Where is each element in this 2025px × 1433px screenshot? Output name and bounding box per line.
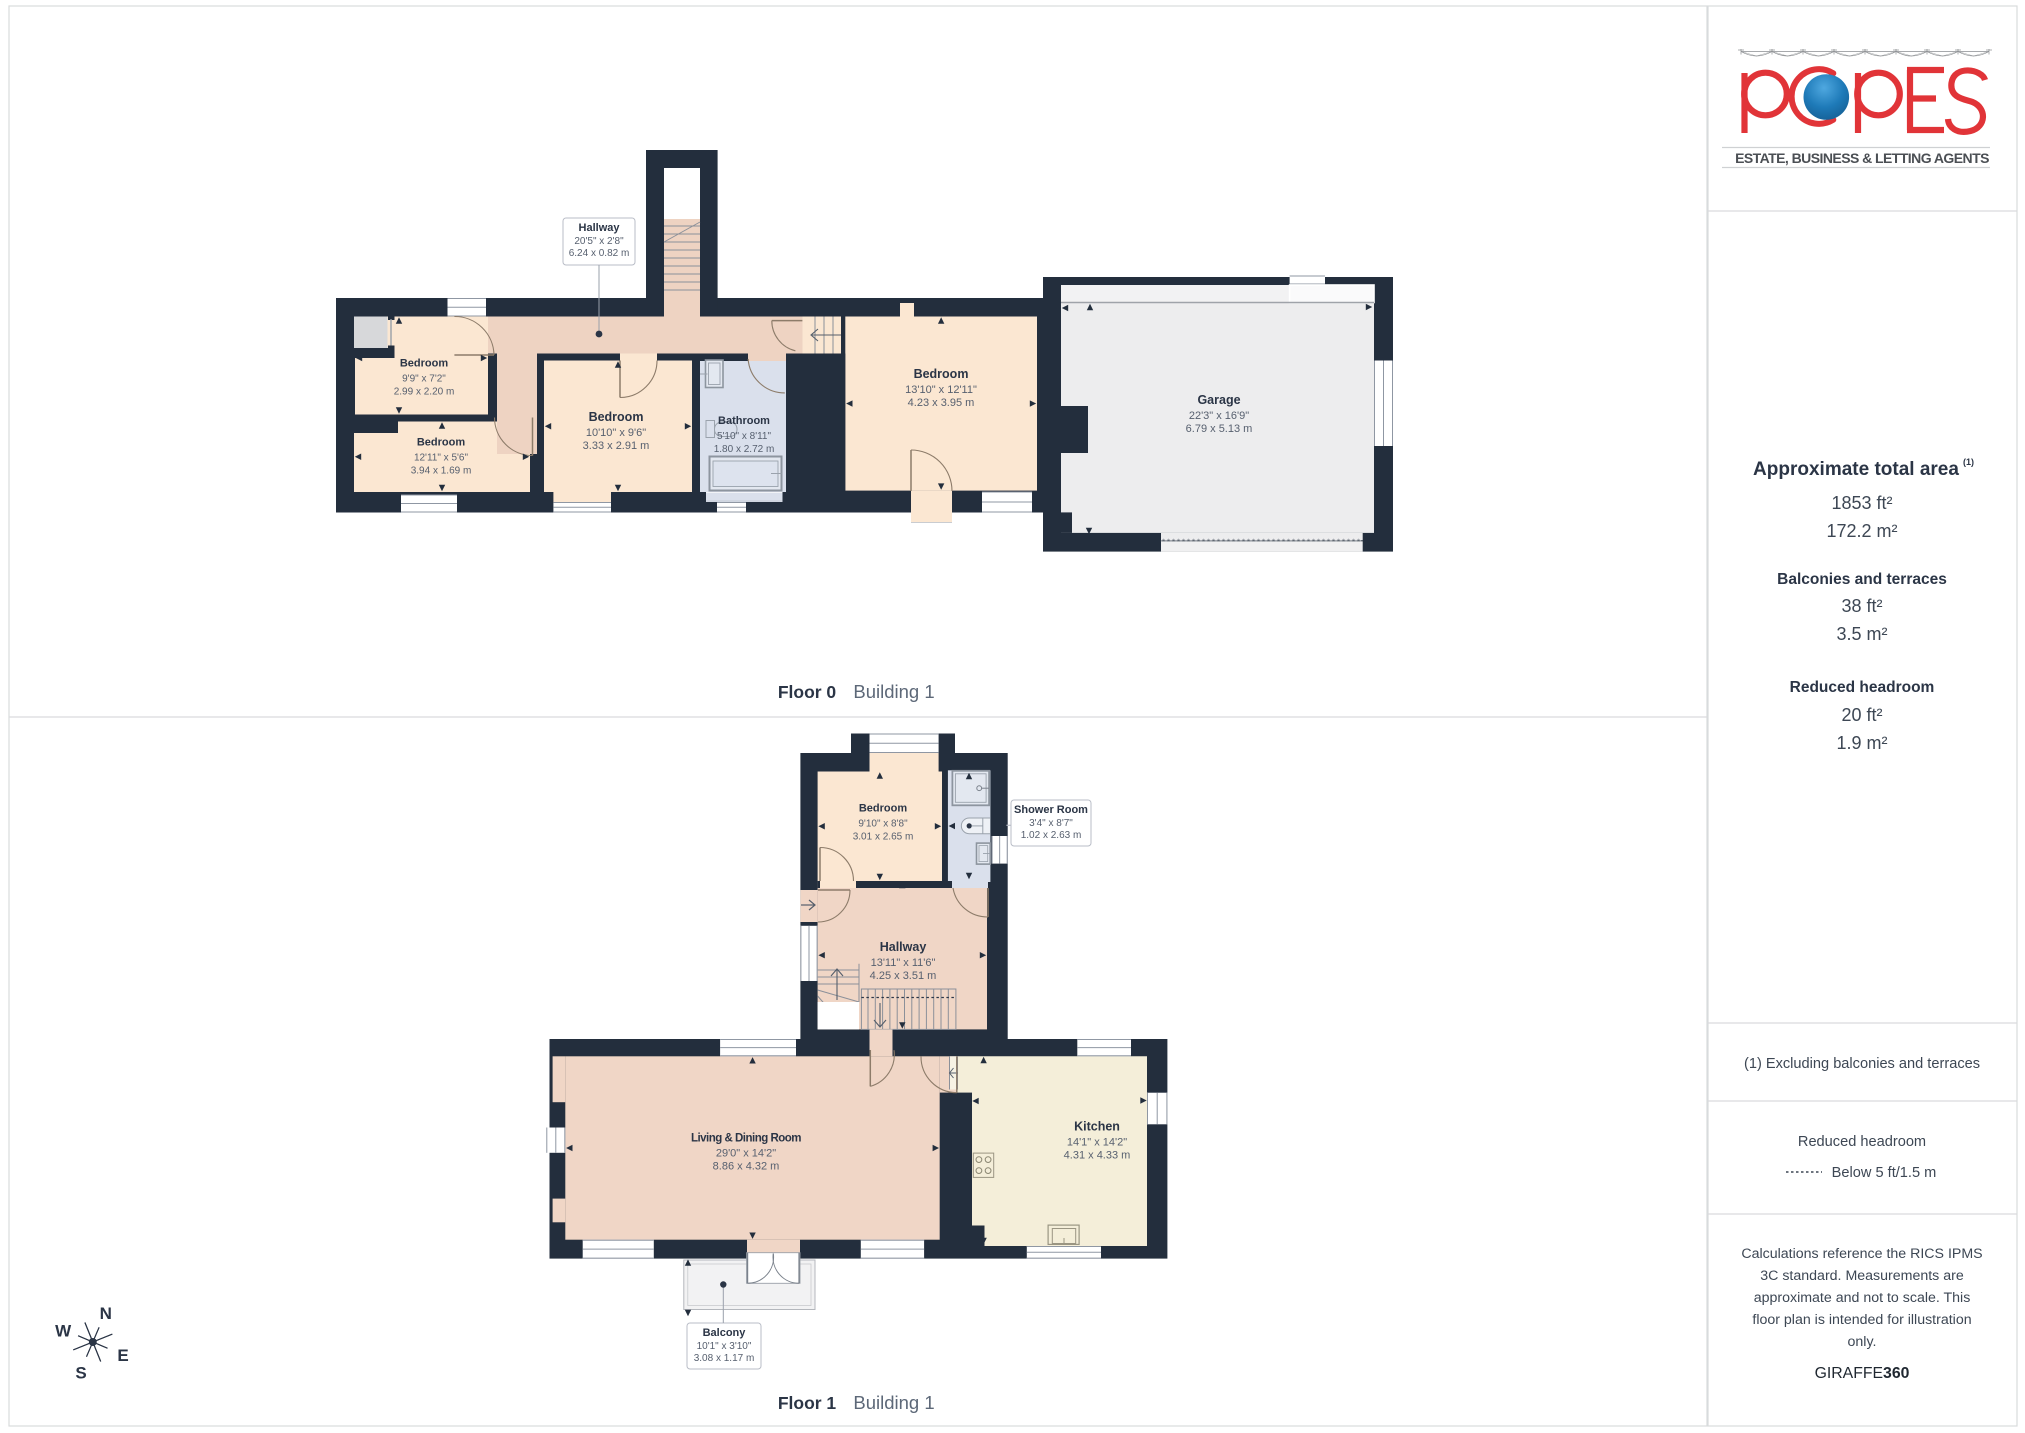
svg-text:Bathroom: Bathroom (718, 415, 770, 427)
svg-text:14'1" x 14'2": 14'1" x 14'2" (1067, 1137, 1127, 1149)
svg-text:4.25 x 3.51 m: 4.25 x 3.51 m (870, 970, 937, 982)
svg-text:Living & Dining Room: Living & Dining Room (691, 1133, 801, 1145)
svg-text:ESTATE, BUSINESS & LETTING AGE: ESTATE, BUSINESS & LETTING AGENTS (1735, 150, 1989, 166)
svg-text:1853 ft²: 1853 ft² (1831, 493, 1892, 513)
svg-text:(1) Excluding balconies and te: (1) Excluding balconies and terraces (1744, 1056, 1980, 1072)
svg-text:Garage: Garage (1197, 393, 1240, 407)
svg-text:13'10" x 12'11": 13'10" x 12'11" (905, 384, 977, 396)
svg-text:6.79 x 5.13 m: 6.79 x 5.13 m (1186, 423, 1253, 435)
svg-text:1.80 x 2.72 m: 1.80 x 2.72 m (714, 444, 775, 455)
svg-text:Building 1: Building 1 (853, 681, 934, 702)
svg-text:floor plan is intended for ill: floor plan is intended for illustration (1752, 1312, 1971, 1328)
svg-text:Bedroom: Bedroom (859, 803, 908, 815)
svg-text:GIRAFFE360: GIRAFFE360 (1815, 1365, 1910, 1382)
svg-text:Hallway: Hallway (579, 222, 621, 234)
svg-text:N: N (100, 1304, 112, 1323)
svg-text:Below 5 ft/1.5 m: Below 5 ft/1.5 m (1832, 1165, 1937, 1181)
svg-text:Bedroom: Bedroom (400, 358, 449, 370)
svg-text:9'10" x 8'8": 9'10" x 8'8" (858, 819, 908, 830)
svg-text:(1): (1) (1963, 457, 1974, 467)
svg-text:3.01 x 2.65 m: 3.01 x 2.65 m (853, 832, 914, 843)
svg-text:2.99 x 2.20 m: 2.99 x 2.20 m (394, 387, 455, 398)
svg-text:Reduced headroom: Reduced headroom (1798, 1134, 1926, 1150)
svg-text:W: W (55, 1322, 72, 1341)
svg-text:29'0" x 14'2": 29'0" x 14'2" (716, 1148, 776, 1160)
svg-text:3'4" x 8'7": 3'4" x 8'7" (1029, 818, 1073, 829)
svg-text:only.: only. (1848, 1334, 1877, 1350)
svg-text:Shower Room: Shower Room (1014, 804, 1088, 816)
svg-text:Bedroom: Bedroom (914, 367, 969, 381)
svg-text:10'1" x 3'10": 10'1" x 3'10" (697, 1341, 752, 1352)
svg-text:Calculations reference the RIC: Calculations reference the RICS IPMS (1741, 1246, 1982, 1262)
svg-text:Building 1: Building 1 (853, 1392, 934, 1413)
svg-text:38 ft²: 38 ft² (1841, 596, 1882, 616)
svg-text:1.02 x 2.63 m: 1.02 x 2.63 m (1021, 830, 1082, 841)
svg-text:4.23 x 3.95 m: 4.23 x 3.95 m (908, 397, 975, 409)
svg-text:4.31 x 4.33 m: 4.31 x 4.33 m (1064, 1150, 1131, 1162)
svg-text:S: S (75, 1364, 86, 1383)
svg-text:Kitchen: Kitchen (1074, 1120, 1120, 1134)
svg-text:13'11" x 11'6": 13'11" x 11'6" (871, 957, 936, 969)
svg-text:Floor 0: Floor 0 (778, 682, 837, 702)
svg-text:22'3" x 16'9": 22'3" x 16'9" (1189, 410, 1249, 422)
svg-text:Approximate total area: Approximate total area (1753, 459, 1959, 480)
svg-text:9'9" x 7'2": 9'9" x 7'2" (402, 374, 446, 385)
svg-text:3.33 x 2.91 m: 3.33 x 2.91 m (583, 440, 650, 452)
svg-text:20 ft²: 20 ft² (1841, 705, 1882, 725)
svg-text:8.86 x 4.32 m: 8.86 x 4.32 m (713, 1161, 780, 1173)
svg-text:Bedroom: Bedroom (417, 437, 466, 449)
svg-text:Hallway: Hallway (880, 940, 927, 954)
svg-text:3.08 x 1.17 m: 3.08 x 1.17 m (694, 1353, 755, 1364)
svg-text:3C standard. Measurements are: 3C standard. Measurements are (1760, 1268, 1964, 1284)
svg-text:Balconies and terraces: Balconies and terraces (1777, 571, 1947, 588)
svg-text:1.9 m²: 1.9 m² (1836, 733, 1887, 753)
svg-text:5'10" x 8'11": 5'10" x 8'11" (717, 431, 772, 442)
svg-text:approximate and not to scale.: approximate and not to scale. This (1754, 1290, 1971, 1306)
svg-text:E: E (117, 1346, 128, 1365)
svg-text:172.2 m²: 172.2 m² (1826, 521, 1897, 541)
svg-text:Bedroom: Bedroom (589, 410, 644, 424)
svg-text:Reduced headroom: Reduced headroom (1790, 679, 1935, 696)
svg-text:6.24 x 0.82 m: 6.24 x 0.82 m (569, 248, 630, 259)
svg-text:3.5 m²: 3.5 m² (1836, 624, 1887, 644)
svg-text:Balcony: Balcony (703, 1327, 747, 1339)
svg-text:Floor 1: Floor 1 (778, 1393, 837, 1413)
svg-text:20'5" x 2'8": 20'5" x 2'8" (574, 236, 624, 247)
svg-text:10'10" x 9'6": 10'10" x 9'6" (586, 427, 646, 439)
svg-text:3.94 x 1.69 m: 3.94 x 1.69 m (411, 466, 472, 477)
svg-text:12'11" x 5'6": 12'11" x 5'6" (414, 453, 469, 464)
